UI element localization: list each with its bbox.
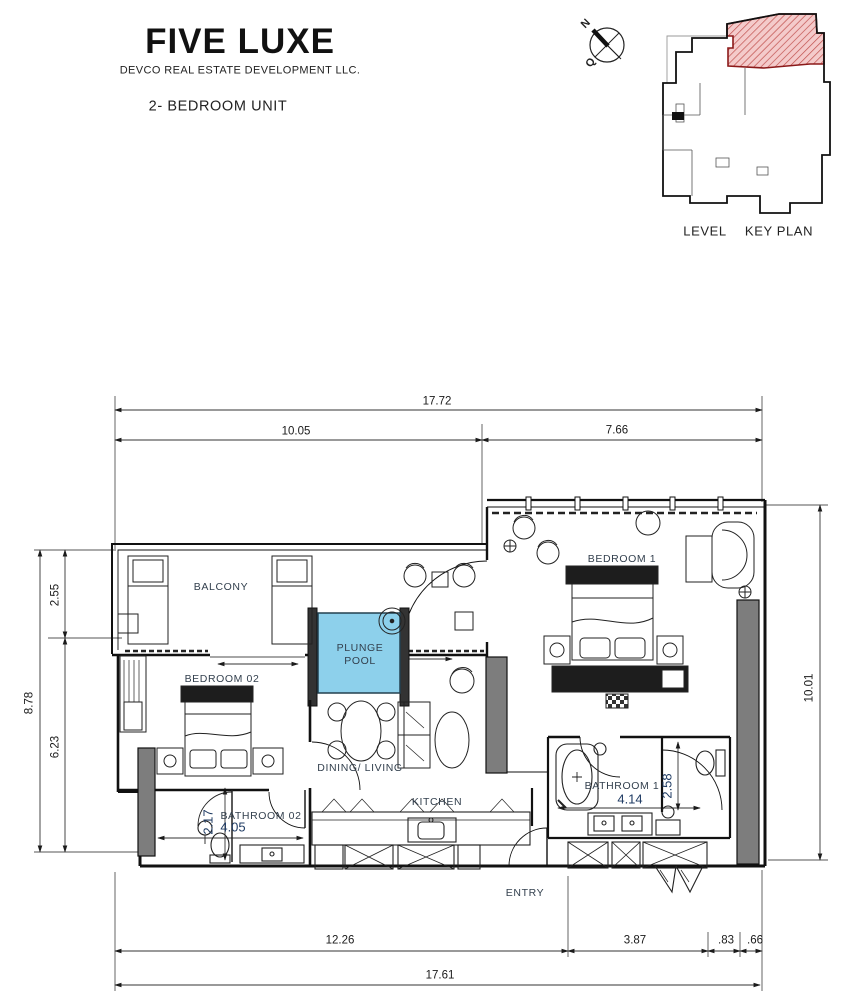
room-label-entry: ENTRY — [506, 887, 544, 899]
room-label-plunge-pool-2: POOL — [344, 655, 376, 667]
kitchen-fixtures — [312, 799, 530, 869]
dim-top-left: 10.05 — [282, 425, 311, 438]
floorplan-page: FIVE LUXE DEVCO REAL ESTATE DEVELOPMENT … — [0, 0, 843, 994]
dim-bottom-seg4: .66 — [747, 934, 763, 947]
dim-bathroom1-depth: 2.58 — [661, 773, 676, 798]
bedroom1-furniture — [504, 511, 754, 708]
column-mid — [486, 657, 507, 773]
dim-bottom-total: 17.61 — [426, 969, 455, 982]
dim-right-total: 10.01 — [803, 674, 816, 703]
key-plan-label: KEY PLAN — [745, 225, 813, 240]
room-label-bedroom2: BEDROOM 02 — [185, 673, 260, 685]
level-label: LEVEL — [683, 225, 726, 240]
dim-bottom-seg1: 12.26 — [326, 934, 355, 947]
dim-bottom-seg3: .83 — [718, 934, 734, 947]
column-right — [737, 600, 759, 864]
dimension-lines — [34, 396, 828, 991]
room-label-dining-living: DINING/ LIVING — [317, 762, 402, 774]
dim-left-lower: 6.23 — [49, 736, 62, 758]
unit-type-label: 2- BEDROOM UNIT — [149, 99, 288, 116]
room-label-kitchen: KITCHEN — [412, 796, 462, 808]
entry-doors — [655, 866, 703, 892]
dim-bottom-seg2: 3.87 — [624, 934, 646, 947]
dim-bathroom2-width: 4.05 — [220, 821, 245, 836]
room-label-plunge-pool-1: PLUNGE — [337, 642, 384, 654]
dim-top-right: 7.66 — [606, 424, 628, 437]
room-label-bathroom1: BATHROOM 1 — [585, 780, 660, 792]
balcony-furniture — [118, 556, 475, 644]
floorplan-drawing — [0, 0, 843, 994]
dim-left-total: 8.78 — [23, 692, 36, 714]
column-left — [138, 748, 155, 856]
room-label-bedroom1: BEDROOM 1 — [588, 553, 656, 565]
developer-name: DEVCO REAL ESTATE DEVELOPMENT LLC. — [120, 65, 361, 78]
key-plan-drawing — [663, 14, 830, 213]
dim-bathroom2-depth: 2.17 — [202, 809, 217, 834]
room-label-balcony: BALCONY — [194, 581, 248, 593]
dim-left-upper: 2.55 — [49, 584, 62, 606]
dim-bathroom1-width: 4.14 — [617, 793, 642, 808]
dim-top-total: 17.72 — [423, 395, 452, 408]
project-title: FIVE LUXE — [145, 22, 335, 62]
north-arrow-icon — [590, 28, 624, 62]
